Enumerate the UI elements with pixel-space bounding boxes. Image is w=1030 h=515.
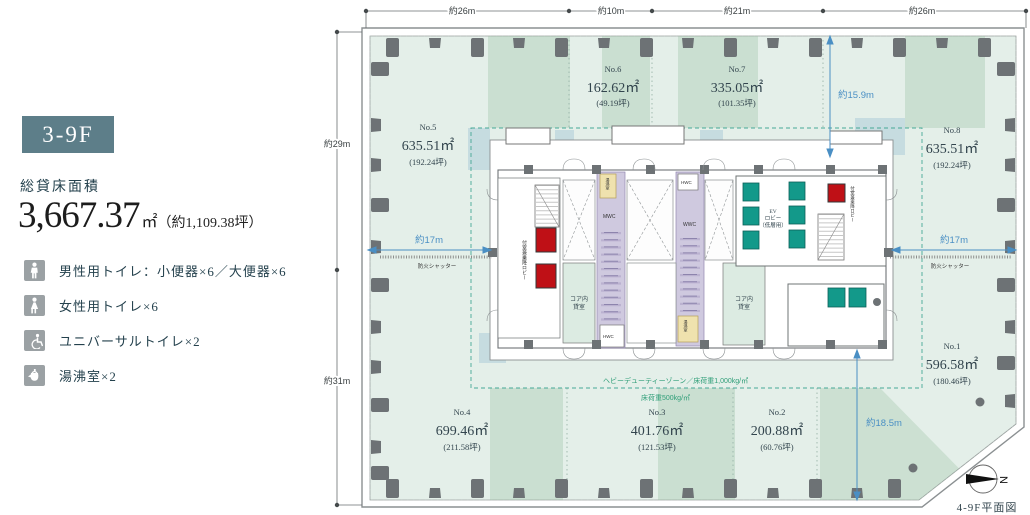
svg-text:約21m: 約21m	[724, 5, 751, 16]
svg-text:635.51㎡: 635.51㎡	[926, 141, 979, 157]
dim-18-5m: 約18.5m	[866, 417, 902, 429]
left-dim-31m: 約31m	[324, 375, 351, 386]
svg-text:(180.46坪): (180.46坪)	[933, 376, 971, 386]
elevator-car	[849, 288, 866, 307]
svg-text:No.6: No.6	[605, 64, 622, 74]
kettle-icon	[24, 365, 45, 386]
svg-text:No.4: No.4	[454, 407, 472, 417]
dim-17m-right: 約17m	[940, 234, 968, 246]
elevator-shafts	[563, 180, 733, 260]
womens-wc: HWC WWC 湯沸室	[676, 172, 704, 346]
svg-text:(192.24坪): (192.24坪)	[409, 157, 447, 167]
svg-text:No.8: No.8	[944, 125, 961, 135]
total-area-tsubo: （約1,109.38坪）	[158, 212, 263, 232]
svg-text:ロビー: ロビー	[765, 214, 782, 222]
facility-label: 女性用トイレ×6	[59, 296, 159, 315]
svg-text:401.76㎡: 401.76㎡	[631, 423, 684, 439]
mens-wc: 湯沸室 MWC HWC	[597, 172, 625, 348]
core-block: 付室兼乗降ロビー 湯沸室 MWC HWC	[487, 126, 897, 360]
north-compass-icon: N	[966, 465, 1009, 493]
kettle-room-label: 湯沸室	[606, 177, 611, 190]
svg-text:コア内: コア内	[570, 295, 588, 303]
svg-text:No.3: No.3	[649, 407, 666, 417]
core-rental-room-right: コア内 貸室	[723, 263, 765, 345]
svg-text:(192.24坪): (192.24坪)	[933, 160, 971, 170]
svg-text:貸室: 貸室	[738, 303, 750, 311]
total-area-value-row: 3,667.37 ㎡ （約1,109.38坪）	[18, 194, 263, 237]
left-dimension-line	[337, 32, 362, 505]
vestibule-label: 付室兼乗降ロビー	[850, 185, 856, 222]
hwc-label: HWC	[603, 334, 614, 339]
floor-plan-page: 付室兼乗降ロビー 湯沸室 MWC HWC	[0, 0, 1030, 515]
elevator-car	[828, 288, 845, 307]
emergency-elevator	[536, 228, 556, 252]
svg-text:No.7: No.7	[729, 64, 746, 74]
total-area-unit: ㎡	[142, 208, 158, 232]
svg-text:335.05㎡: 335.05㎡	[711, 80, 764, 96]
stairs-left	[535, 185, 559, 227]
svg-text:162.62㎡: 162.62㎡	[587, 80, 640, 96]
facility-row-kettle: 湯沸室×2	[24, 365, 117, 386]
svg-text:596.58㎡: 596.58㎡	[926, 357, 979, 373]
elevator-hall: EV ロビー （低層用） 付室兼乗降ロビー	[736, 176, 886, 266]
svg-text:貸室: 貸室	[573, 303, 585, 311]
core-rental-room-left: コア内 貸室	[563, 263, 595, 343]
service-elevator-room	[788, 284, 884, 346]
left-dim-29m: 約29m	[324, 138, 351, 149]
floor-badge: 3-9F	[22, 116, 114, 153]
stairs-right	[818, 214, 844, 260]
kettle-room-label: 湯沸室	[684, 319, 689, 332]
svg-text:約10m: 約10m	[598, 5, 625, 16]
vestibule-label: 付室兼乗降ロビー	[521, 239, 527, 280]
svg-text:(49.19坪): (49.19坪)	[596, 98, 629, 108]
normal-load-label: 床荷重500kg/㎡	[641, 393, 690, 402]
total-area-value: 3,667.37	[18, 194, 140, 237]
svg-text:(121.53坪): (121.53坪)	[638, 442, 676, 452]
svg-text:約26m: 約26m	[449, 5, 476, 16]
emergency-elevator	[828, 184, 845, 202]
svg-text:635.51㎡: 635.51㎡	[402, 138, 455, 154]
wwc-label: WWC	[683, 222, 696, 228]
emergency-elevator	[536, 264, 556, 288]
male-icon	[24, 260, 45, 281]
facility-label: ユニバーサルトイレ×2	[59, 331, 201, 350]
total-area-label: 総貸床面積	[20, 176, 100, 196]
svg-text:(60.76坪): (60.76坪)	[760, 442, 793, 452]
female-icon	[24, 295, 45, 316]
svg-text:200.88㎡: 200.88㎡	[751, 423, 804, 439]
dim-15-9m: 約15.9m	[838, 89, 874, 101]
facility-row-universal-toilet: ユニバーサルトイレ×2	[24, 330, 201, 351]
svg-text:(101.35坪): (101.35坪)	[718, 98, 756, 108]
facility-row-male-toilet: 男性用トイレ：小便器×6／大便器×6	[24, 260, 287, 281]
heavy-duty-zone-label: ヘビーデューティーゾーン／床荷重1,000kg/㎡	[603, 376, 748, 385]
svg-text:No.5: No.5	[420, 122, 437, 132]
accessibility-icon	[24, 330, 45, 351]
svg-text:(211.58坪): (211.58坪)	[443, 442, 480, 452]
hwc-label: HWC	[681, 180, 692, 185]
svg-text:No.2: No.2	[769, 407, 786, 417]
facility-label: 湯沸室×2	[59, 366, 117, 385]
svg-text:699.46㎡: 699.46㎡	[436, 423, 489, 439]
fire-shutter-label: 防火シャッター	[931, 262, 970, 270]
floor-plan-drawing: 付室兼乗降ロビー 湯沸室 MWC HWC	[0, 0, 1030, 515]
mwc-label: MWC	[603, 214, 616, 220]
svg-text:N: N	[997, 476, 1009, 484]
svg-text:No.1: No.1	[944, 341, 961, 351]
fire-shutter-label: 防火シャッター	[418, 262, 457, 270]
facility-label: 男性用トイレ：小便器×6／大便器×6	[59, 261, 287, 280]
facility-row-female-toilet: 女性用トイレ×6	[24, 295, 159, 316]
svg-text:EV: EV	[769, 209, 776, 215]
svg-text:約26m: 約26m	[909, 5, 936, 16]
plan-caption: 4-9F平面図	[957, 501, 1018, 514]
svg-text:（低層用）: （低層用）	[759, 221, 787, 229]
dim-17m-left: 約17m	[415, 234, 443, 246]
svg-text:コア内: コア内	[735, 295, 753, 303]
top-dimension-labels: 約26m 約10m 約21m 約26m	[449, 5, 936, 16]
